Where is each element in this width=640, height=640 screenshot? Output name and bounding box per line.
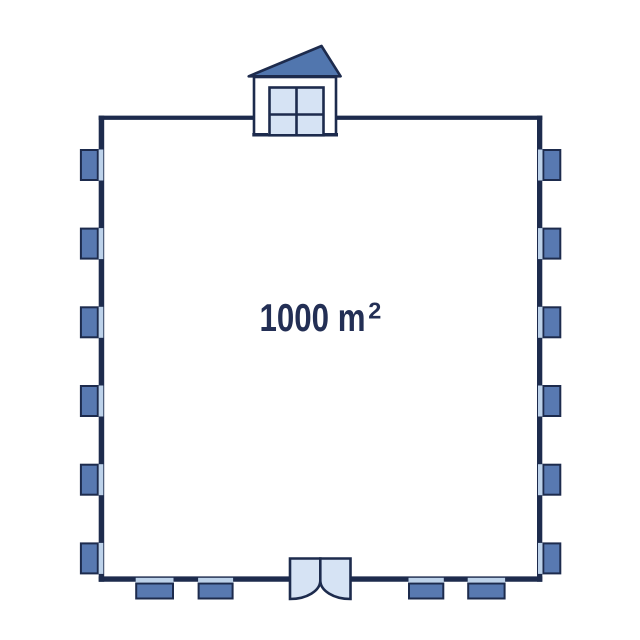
svg-text:1000 m: 1000 m	[260, 297, 366, 340]
svg-text:2: 2	[368, 298, 381, 324]
